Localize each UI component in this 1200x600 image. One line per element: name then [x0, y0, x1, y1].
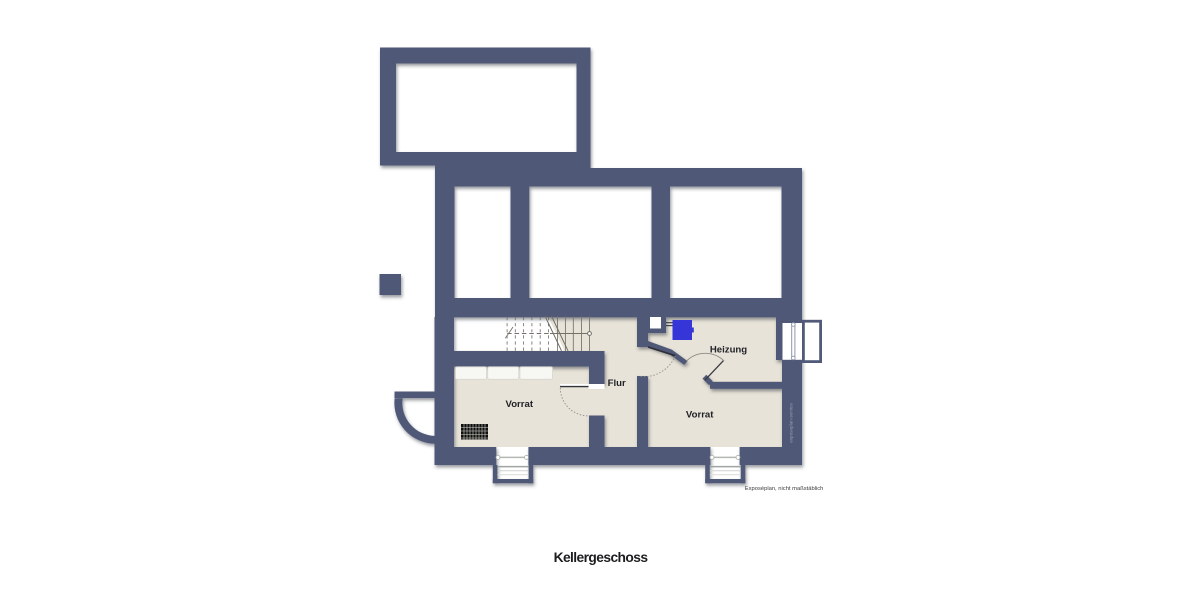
svg-text:Kellergeschoss: Kellergeschoss	[554, 550, 649, 565]
svg-text:Flur: Flur	[608, 378, 626, 389]
svg-text:Vorrat: Vorrat	[686, 409, 714, 420]
svg-text:exposeplan-service: exposeplan-service	[788, 403, 793, 443]
svg-text:Heizung: Heizung	[710, 344, 747, 355]
svg-text:Vorrat: Vorrat	[506, 399, 534, 410]
svg-text:Exposéplan, nicht maßstäblich: Exposéplan, nicht maßstäblich	[745, 486, 824, 492]
